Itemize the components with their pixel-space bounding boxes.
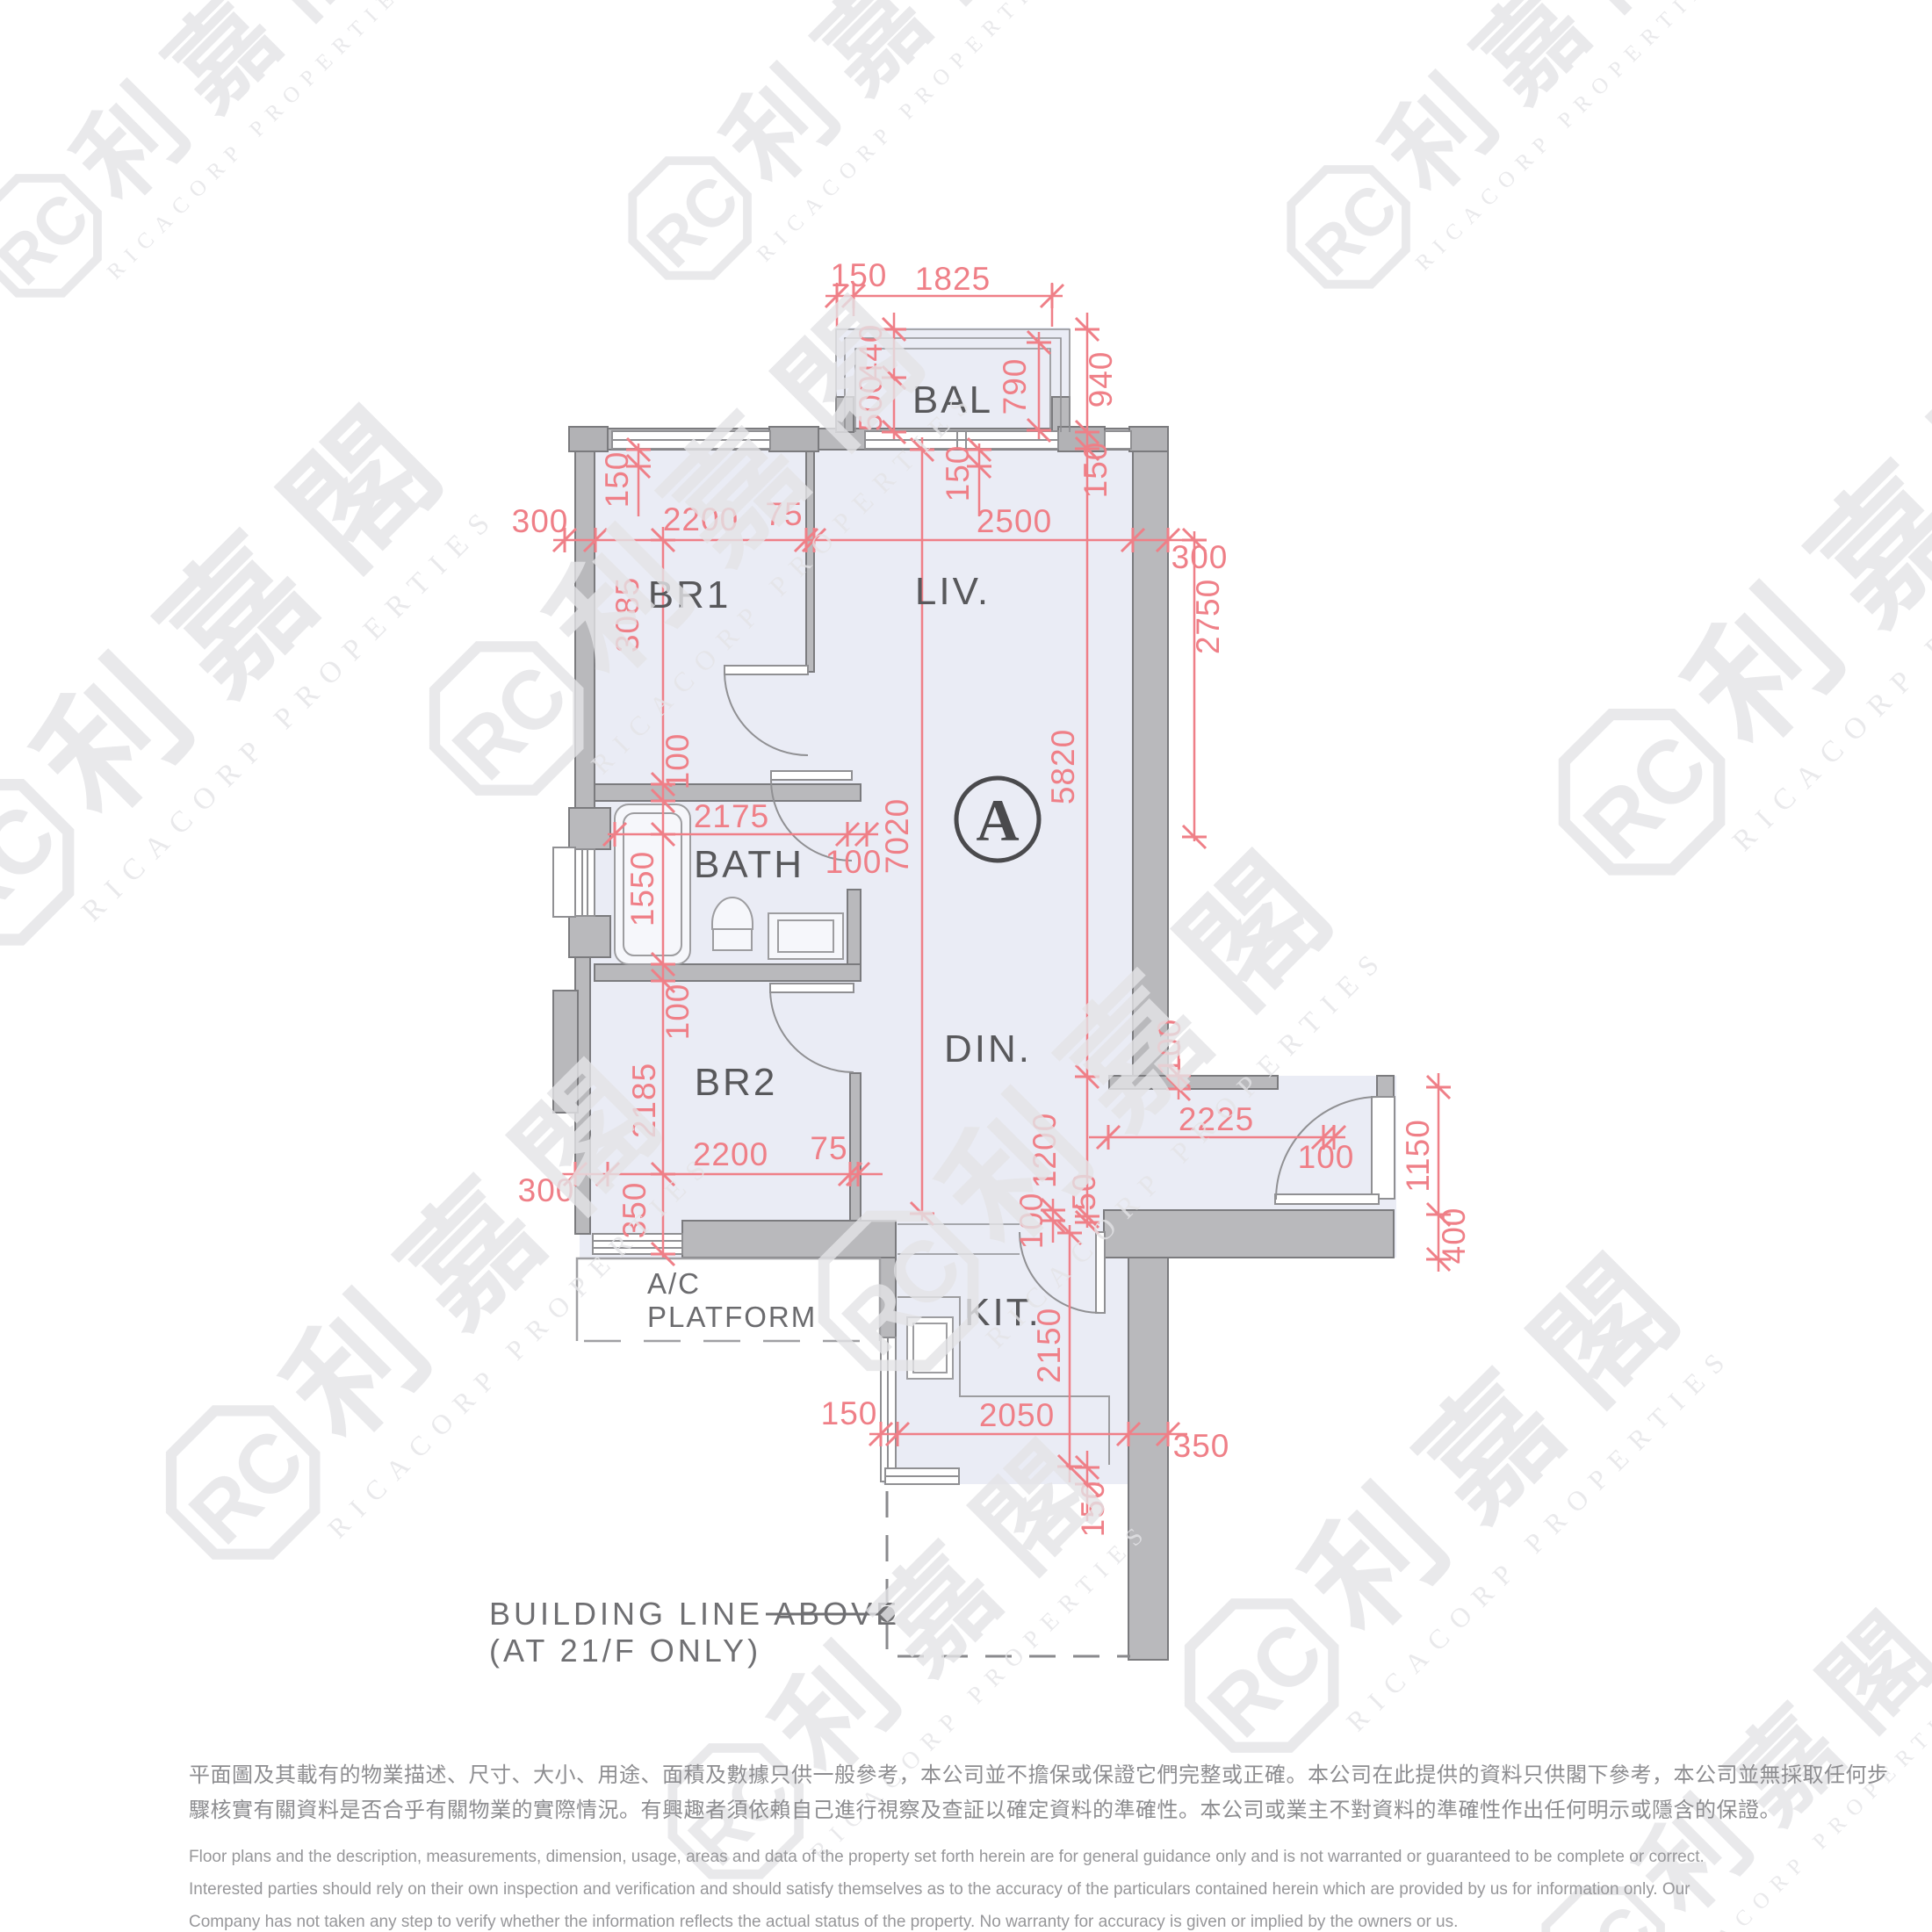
dim-bath-100t: 100 xyxy=(660,733,696,790)
dim-br2-75: 75 xyxy=(810,1130,847,1166)
dim-150-liv: 150 xyxy=(940,445,976,502)
dim-2750: 2750 xyxy=(1190,579,1226,654)
dim-3085: 3085 xyxy=(609,577,645,652)
dim-top-300r: 300 xyxy=(1171,539,1229,575)
room-label-br1: BR1 xyxy=(648,573,732,616)
room-label-kit: KIT. xyxy=(964,1291,1042,1334)
floorplan-page: 150 1825 440 500 790 940 150 300 2200 75… xyxy=(0,0,1932,1932)
dim-br2-2200: 2200 xyxy=(693,1136,768,1172)
disclaimer-zh-line1: 平面圖及其載有的物業描述、尺寸、大小、用途、面積及數據只供一般參考，本公司並不擔… xyxy=(189,1758,1770,1793)
dim-kit-350r: 350 xyxy=(1173,1428,1230,1464)
dim-cor-100r: 100 xyxy=(1298,1139,1355,1175)
dim-5820: 5820 xyxy=(1045,729,1081,804)
dim-top-75: 75 xyxy=(765,496,803,532)
building-line-text1: BUILDING LINE ABOVE xyxy=(489,1596,900,1632)
dim-cor-400: 400 xyxy=(1436,1207,1472,1265)
dim-7020: 7020 xyxy=(879,798,915,874)
dim-cor-100l: 100 xyxy=(1013,1193,1049,1250)
dim-br2-300: 300 xyxy=(518,1172,575,1208)
dim-bal-940: 940 xyxy=(1083,351,1119,408)
dim-bal-offset: 150 xyxy=(831,257,888,293)
dim-bath-100b: 100 xyxy=(660,984,696,1041)
ac-label-line1: A/C xyxy=(647,1267,701,1300)
dim-br2-350: 350 xyxy=(616,1182,652,1239)
building-line-text2: (AT 21/F ONLY) xyxy=(489,1633,761,1669)
dim-150-br1: 150 xyxy=(599,451,635,508)
disclaimer-en-line3: Company has not taken any step to verify… xyxy=(189,1906,1770,1932)
disclaimer-block: 平面圖及其載有的物業描述、尺寸、大小、用途、面積及數據只供一般參考，本公司並不擔… xyxy=(189,1758,1770,1932)
dim-bath-100d: 100 xyxy=(825,844,883,880)
dim-bath-2175: 2175 xyxy=(694,798,769,834)
dim-bal-width: 1825 xyxy=(915,261,991,297)
dim-cor-1150: 1150 xyxy=(1400,1119,1436,1193)
dim-bal-790: 790 xyxy=(997,358,1033,415)
dim-kit-150l: 150 xyxy=(821,1395,878,1431)
disclaimer-en-line1: Floor plans and the description, measure… xyxy=(189,1841,1770,1873)
ac-label-line2: PLATFORM xyxy=(647,1301,817,1333)
dim-top-2200: 2200 xyxy=(663,501,739,537)
building-line-note: BUILDING LINE ABOVE (AT 21/F ONLY) xyxy=(489,1596,900,1669)
dim-cor-2225: 2225 xyxy=(1179,1101,1254,1137)
disclaimer-en-line2: Interested parties should rely on their … xyxy=(189,1873,1770,1906)
toilet-icon xyxy=(712,898,753,950)
floor-plan-drawing: 150 1825 440 500 790 940 150 300 2200 75… xyxy=(0,0,1932,1932)
dim-cor-50: 50 xyxy=(1066,1172,1102,1210)
dim-bal-500: 500 xyxy=(853,375,889,432)
sink-icon xyxy=(768,913,843,959)
dim-top-2500: 2500 xyxy=(977,503,1052,539)
room-label-bal: BAL xyxy=(912,378,993,422)
room-label-din: DIN. xyxy=(944,1027,1032,1071)
dim-kit-2050: 2050 xyxy=(979,1397,1055,1433)
room-label-bath: BATH xyxy=(694,843,804,886)
dim-bal-440: 440 xyxy=(853,324,889,381)
disclaimer-zh-line2: 驟核實有關資料是否合乎有關物業的實際情況。有興趣者須依賴自己進行視察及查証以確定… xyxy=(189,1793,1770,1828)
dim-kit-150b: 150 xyxy=(1075,1481,1111,1538)
dim-cor-100t: 100 xyxy=(1151,1019,1187,1076)
dim-bath-1550: 1550 xyxy=(624,851,660,926)
dim-cor-1200: 1200 xyxy=(1027,1113,1063,1188)
unit-letter: A xyxy=(976,787,1019,854)
dim-top-300l: 300 xyxy=(512,503,569,539)
dim-bal-150r: 150 xyxy=(1078,442,1114,499)
room-label-liv: LIV. xyxy=(915,570,991,613)
room-label-br2: BR2 xyxy=(695,1061,778,1104)
dim-br2-2185: 2185 xyxy=(626,1063,662,1138)
